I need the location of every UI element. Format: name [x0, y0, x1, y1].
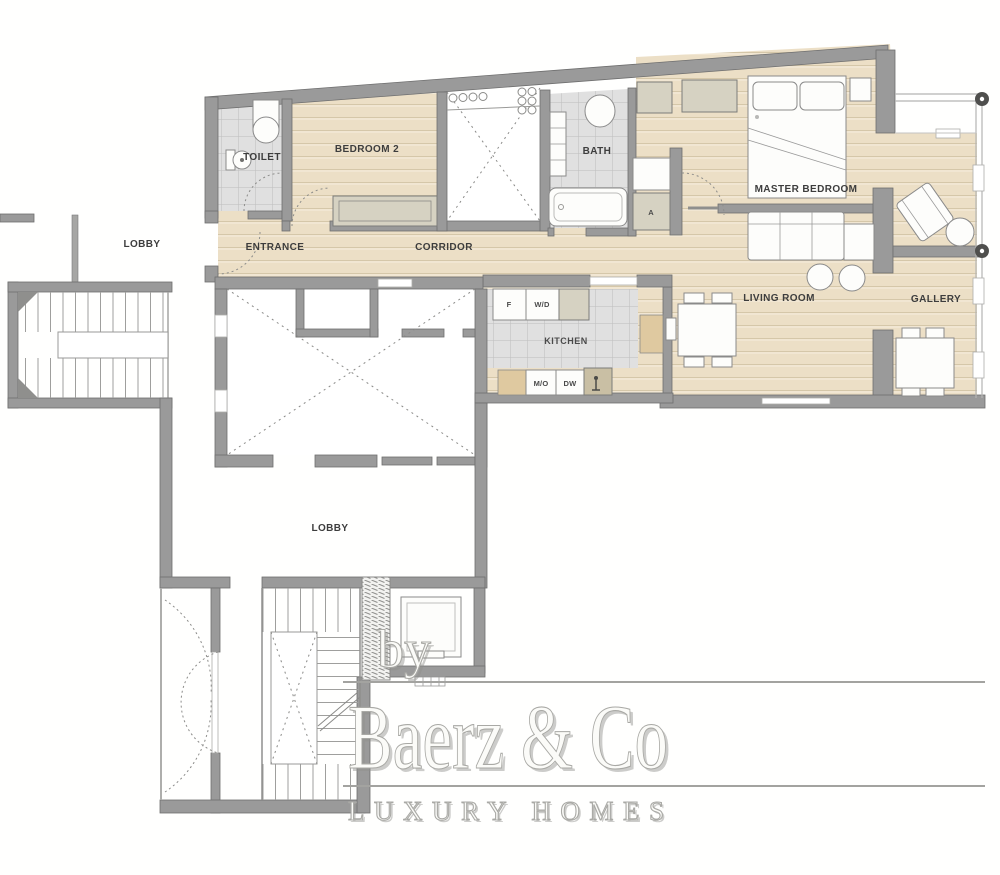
chair — [902, 388, 920, 396]
pillow — [753, 82, 797, 110]
side-table — [839, 265, 865, 291]
chair — [684, 293, 704, 303]
bedroom2-furniture — [333, 196, 437, 226]
cooktop — [584, 368, 612, 395]
pillow — [800, 82, 844, 110]
chair — [926, 388, 944, 396]
watermark-brand: Baerz & Co — [348, 686, 668, 788]
bath-sink — [585, 95, 615, 127]
watermark-tagline-shadow: LUXURY HOMES — [350, 798, 666, 828]
room-label-gallery: GALLERY — [911, 294, 961, 305]
room-label-lobby-lower: LOBBY — [312, 523, 349, 534]
chair — [712, 357, 732, 367]
label-micro-oven: M/O — [534, 379, 549, 388]
sofa — [748, 212, 844, 260]
chair — [902, 328, 920, 338]
gallery-table — [896, 338, 954, 388]
side-table — [807, 264, 833, 290]
room-label-toilet: TOILET — [243, 152, 281, 163]
label-washer-dryer: W/D — [534, 300, 550, 309]
dining-table — [678, 304, 736, 356]
room-label-living: LIVING ROOM — [743, 293, 815, 304]
room-label-lobby-upper: LOBBY — [124, 239, 161, 250]
chair — [926, 328, 944, 338]
watermark-by: by — [377, 619, 431, 679]
bathtub — [549, 188, 627, 226]
stairs-upper — [18, 292, 168, 398]
wardrobe — [333, 196, 437, 226]
chair — [712, 293, 732, 303]
chair — [666, 318, 676, 340]
room-label-corridor: CORRIDOR — [415, 242, 473, 253]
floor-plan-page: TOILET BEDROOM 2 BATH MASTER BEDROOM LOB… — [0, 0, 1000, 875]
room-label-entrance: ENTRANCE — [246, 242, 305, 253]
room-label-kitchen: KITCHEN — [544, 336, 588, 346]
floor-plan-drawing: TOILET BEDROOM 2 BATH MASTER BEDROOM LOB… — [0, 0, 1000, 875]
nightstand — [850, 78, 871, 101]
room-label-bedroom2: BEDROOM 2 — [335, 144, 399, 155]
stairs-lower — [262, 588, 360, 800]
chair — [684, 357, 704, 367]
washbasin-bowl — [253, 117, 279, 143]
armchair — [844, 224, 874, 260]
label-closet-a: A — [648, 208, 654, 217]
round-table — [946, 218, 974, 246]
label-dishwasher: DW — [564, 379, 578, 388]
room-label-bath: BATH — [583, 146, 612, 157]
label-fridge: F — [507, 300, 512, 309]
room-label-master: MASTER BEDROOM — [755, 184, 858, 195]
